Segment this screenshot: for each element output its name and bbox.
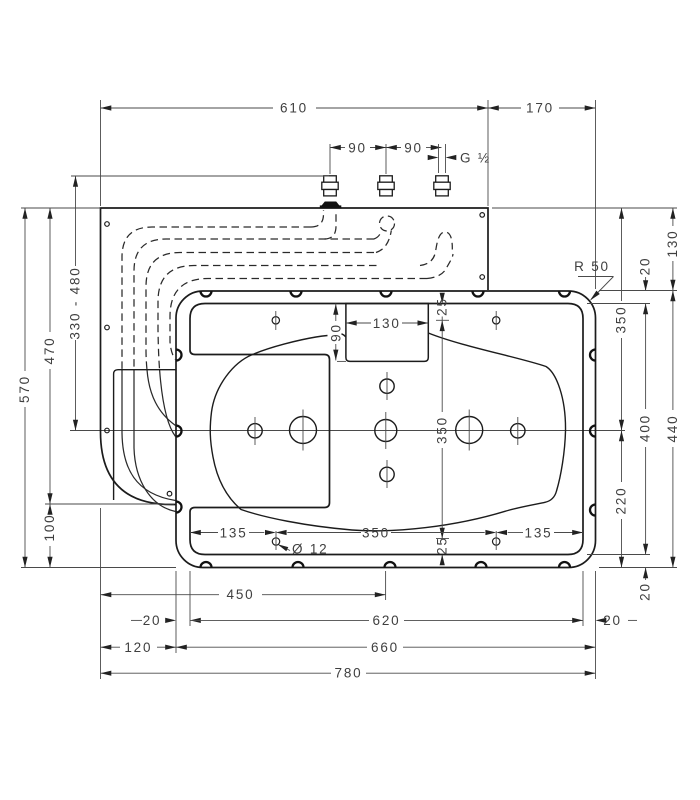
svg-text:90: 90 [404, 140, 423, 155]
svg-text:350: 350 [435, 416, 450, 444]
svg-text:610: 610 [280, 101, 308, 116]
svg-text:780: 780 [335, 666, 363, 681]
svg-text:90: 90 [329, 323, 344, 342]
svg-text:G ½: G ½ [460, 150, 491, 165]
svg-text:100: 100 [42, 514, 57, 542]
svg-text:350: 350 [614, 306, 629, 334]
svg-text:330 - 480: 330 - 480 [67, 266, 82, 339]
svg-text:130: 130 [373, 316, 401, 331]
svg-text:120: 120 [124, 640, 152, 655]
svg-text:620: 620 [373, 613, 401, 628]
svg-text:350: 350 [362, 525, 390, 540]
svg-text:135: 135 [220, 525, 248, 540]
svg-text:20: 20 [638, 582, 653, 601]
svg-text:570: 570 [17, 375, 32, 403]
svg-text:660: 660 [371, 640, 399, 655]
svg-text:170: 170 [526, 101, 554, 116]
svg-text:25: 25 [435, 297, 450, 316]
svg-text:440: 440 [665, 415, 680, 443]
svg-text:400: 400 [638, 414, 653, 442]
svg-text:Ø 12: Ø 12 [292, 542, 328, 557]
svg-text:90: 90 [348, 140, 367, 155]
svg-text:20: 20 [143, 613, 162, 628]
svg-text:135: 135 [525, 525, 553, 540]
svg-text:470: 470 [42, 337, 57, 365]
svg-text:R 50: R 50 [574, 259, 610, 274]
svg-text:20: 20 [603, 613, 622, 628]
svg-text:220: 220 [614, 487, 629, 515]
svg-text:20: 20 [638, 257, 653, 276]
svg-text:130: 130 [665, 230, 680, 258]
svg-text:25: 25 [435, 536, 450, 555]
svg-text:450: 450 [227, 587, 255, 602]
